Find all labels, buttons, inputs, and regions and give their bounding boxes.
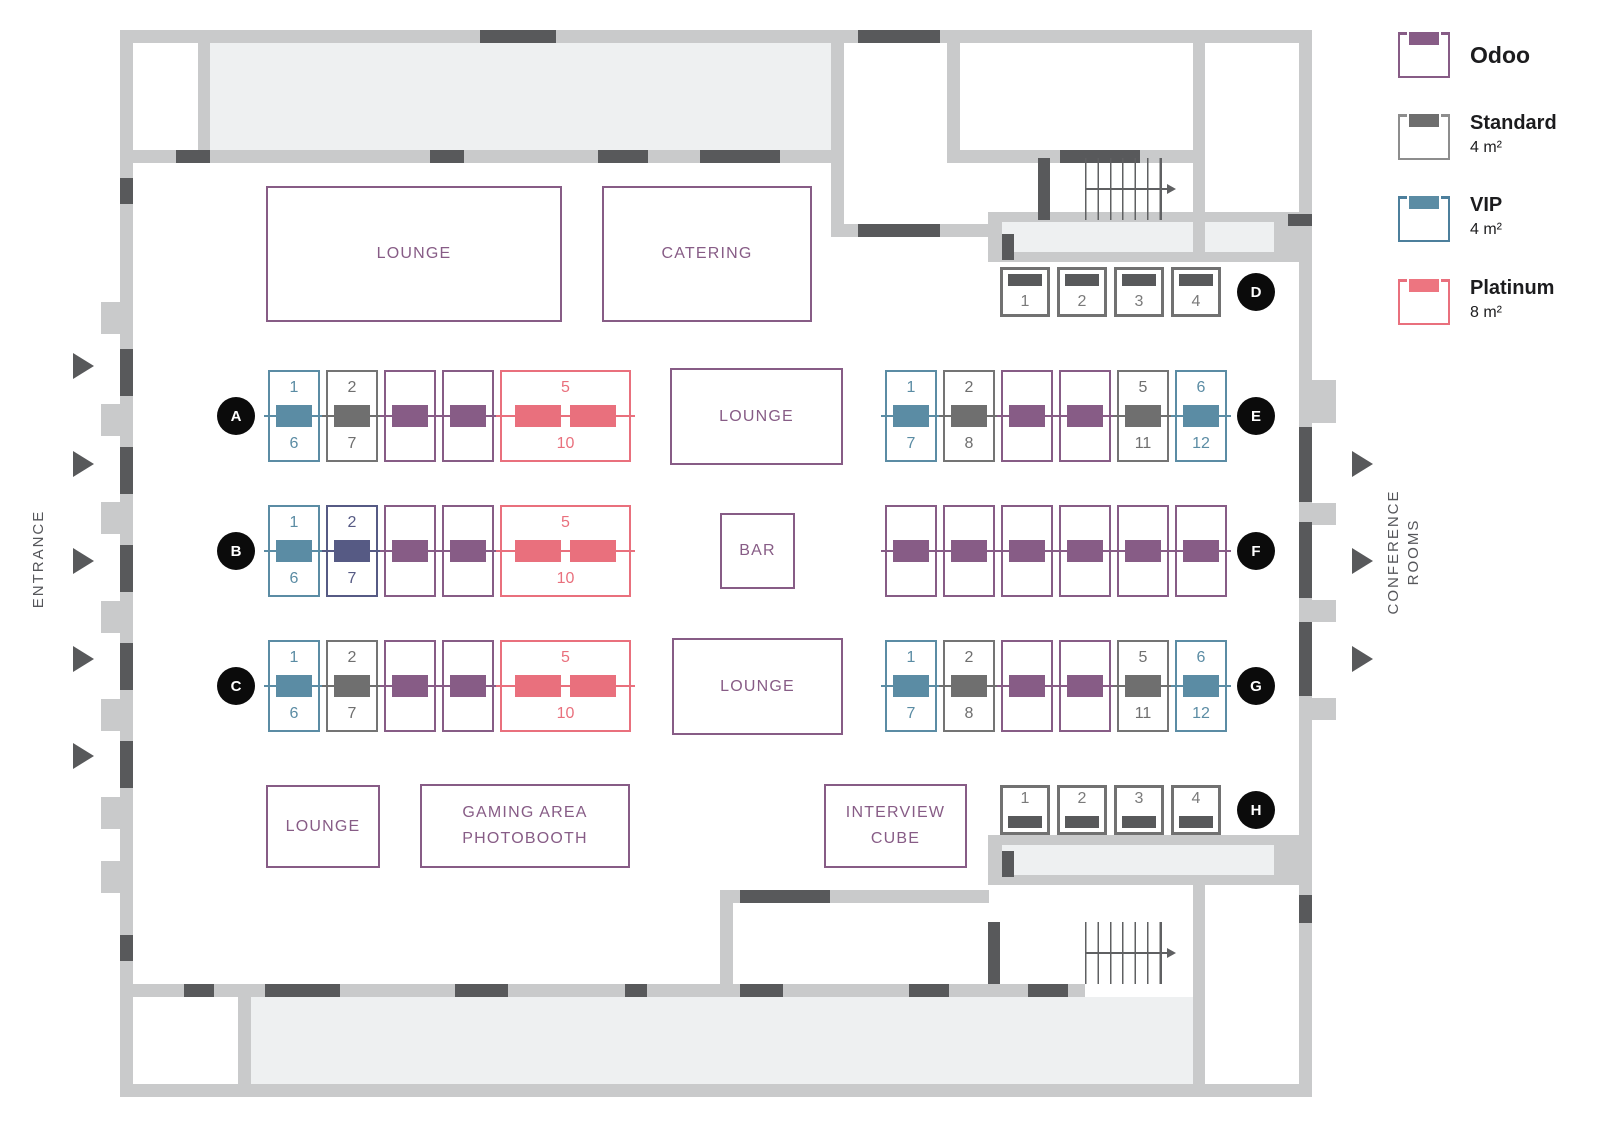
legend-vip-size: 4 m² [1470,221,1502,239]
booth-d-4[interactable]: 4 [1171,267,1221,317]
wall-bottom [120,1084,1312,1097]
legend-vip-icon [1398,196,1450,242]
booth-g-6[interactable]: 6 12 [1175,640,1227,732]
row-marker-e: E [1237,397,1275,435]
booth-c-5[interactable]: 5 10 [500,640,631,732]
row-marker-b: B [217,532,255,570]
entrance-arrow-icon [73,451,94,477]
booth-a-3[interactable] [384,370,436,462]
wall [198,43,210,163]
door-segment [120,643,133,690]
booth-h-2[interactable]: 2 [1057,785,1107,835]
conference-arrow-icon [1352,451,1373,477]
area-label: PHOTOBOOTH [462,826,588,852]
pillar [101,861,122,893]
door-segment [120,447,133,494]
door-segment [988,922,1000,984]
door-segment [455,984,508,997]
door-segment [598,150,648,163]
booth-f-4[interactable] [1059,505,1111,597]
wall [1193,43,1205,262]
legend-odoo-label: Odoo [1470,42,1530,69]
door-segment [1288,214,1312,226]
corridor-bottom [1002,845,1274,875]
door-segment [1299,895,1312,923]
legend-platinum-label: Platinum [1470,277,1554,300]
area-label: GAMING AREA [462,800,587,826]
area-bar: BAR [720,513,795,589]
conference-arrow-icon [1352,646,1373,672]
row-marker-g: G [1237,667,1275,705]
booth-g-4[interactable] [1059,640,1111,732]
row-marker-h: H [1237,791,1275,829]
storage-room-top [210,43,831,150]
wall [720,890,733,997]
area-lounge-top: LOUNGE [266,186,562,322]
stairs-direction-arrow [1085,952,1174,954]
area-interview-cube: INTERVIEW CUBE [824,784,967,868]
wall-top [120,30,1312,43]
pillar [1312,380,1336,423]
row-marker-a: A [217,397,255,435]
area-label: INTERVIEW [846,800,945,826]
booth-h-3[interactable]: 3 [1114,785,1164,835]
door-segment [740,984,783,997]
area-label: LOUNGE [286,814,361,840]
booth-e-6[interactable]: 6 12 [1175,370,1227,462]
door-segment [265,984,340,997]
booth-g-5[interactable]: 5 11 [1117,640,1169,732]
entrance-arrow-icon [73,743,94,769]
wall [238,997,251,1085]
legend-vip-label: VIP [1470,194,1502,217]
door-segment [740,890,830,903]
pillar [101,601,122,633]
booth-g-3[interactable] [1001,640,1053,732]
booth-f-5[interactable] [1117,505,1169,597]
booth-g-2[interactable]: 2 8 [943,640,995,732]
row-marker-d: D [1237,273,1275,311]
door-segment [1299,427,1312,502]
booth-h-4[interactable]: 4 [1171,785,1221,835]
pillar [101,302,122,334]
pillar [101,404,122,436]
area-gaming-photobooth: GAMING AREA PHOTOBOOTH [420,784,630,868]
area-label: CATERING [661,241,752,267]
wall [831,30,844,237]
door-segment [120,349,133,396]
pillar [101,699,122,731]
area-label: CUBE [871,826,920,852]
area-label: BAR [739,538,776,564]
booth-c-4[interactable] [442,640,494,732]
booth-e-1[interactable]: 1 7 [885,370,937,462]
area-lounge-middle-bottom: LOUNGE [672,638,843,735]
door-segment [120,741,133,788]
area-lounge-bottom: LOUNGE [266,785,380,868]
area-label: LOUNGE [720,674,795,700]
booth-e-5[interactable]: 5 11 [1117,370,1169,462]
door-segment [858,224,940,237]
booth-e-2[interactable]: 2 8 [943,370,995,462]
door-segment [120,935,133,961]
booth-d-1[interactable]: 1 [1000,267,1050,317]
pillar [1312,503,1336,525]
pillar [101,797,122,829]
booth-a-2[interactable]: 2 7 [326,370,378,462]
booth-f-6[interactable] [1175,505,1227,597]
door-segment [1002,234,1014,260]
stairs-top [1085,158,1174,220]
booth-b-2[interactable]: 2 7 [326,505,378,597]
area-label: LOUNGE [719,404,794,430]
booth-c-1[interactable]: 1 6 [268,640,320,732]
legend-platinum-icon [1398,279,1450,325]
wall [1193,885,1205,1085]
conference-label-line2: ROOMS [1404,452,1424,652]
booth-c-3[interactable] [384,640,436,732]
door-segment [120,545,133,592]
stairs-bottom [1085,922,1174,984]
row-marker-f: F [1237,532,1275,570]
door-segment [1299,622,1312,696]
booth-c-2[interactable]: 2 7 [326,640,378,732]
door-segment [700,150,780,163]
area-lounge-middle-top: LOUNGE [670,368,843,465]
entrance-label: ENTRANCE [29,479,49,639]
legend-platinum-size: 8 m² [1470,304,1502,322]
door-segment [430,150,464,163]
booth-d-3[interactable]: 3 [1114,267,1164,317]
conference-label-line1: CONFERENCE [1384,452,1404,652]
pillar [1312,600,1336,622]
door-segment [1002,851,1014,877]
legend-standard-size: 4 m² [1470,139,1502,157]
door-segment [1299,522,1312,598]
booth-h-1[interactable]: 1 [1000,785,1050,835]
row-marker-c: C [217,667,255,705]
area-label: LOUNGE [377,241,452,267]
legend-odoo-icon [1398,32,1450,78]
booth-b-1[interactable]: 1 6 [268,505,320,597]
storage-room-bottom [251,997,1193,1085]
legend-standard-icon [1398,114,1450,160]
booth-a-5[interactable]: 5 10 [500,370,631,462]
pillar [1312,698,1336,720]
stairs-direction-arrow [1085,188,1174,190]
door-segment [176,150,210,163]
door-segment [625,984,647,997]
booth-e-3[interactable] [1001,370,1053,462]
booth-d-2[interactable]: 2 [1057,267,1107,317]
conference-rooms-label: CONFERENCE ROOMS [1384,452,1424,652]
booth-b-5[interactable]: 5 10 [500,505,631,597]
area-catering: CATERING [602,186,812,322]
booth-f-3[interactable] [1001,505,1053,597]
entrance-arrow-icon [73,548,94,574]
wall [947,43,960,157]
door-segment [1038,158,1050,220]
booth-f-2[interactable] [943,505,995,597]
booth-f-1[interactable] [885,505,937,597]
door-segment [120,178,133,204]
entrance-arrow-icon [73,646,94,672]
booth-a-4[interactable] [442,370,494,462]
door-segment [909,984,949,997]
booth-b-4[interactable] [442,505,494,597]
door-segment [1028,984,1068,997]
door-segment [480,30,556,43]
booth-a-1[interactable]: 1 6 [268,370,320,462]
booth-g-1[interactable]: 1 7 [885,640,937,732]
booth-e-4[interactable] [1059,370,1111,462]
floor-plan: ENTRANCE CONFERENCE ROOMS LOUNGE CATERIN… [0,0,1600,1124]
booth-b-3[interactable] [384,505,436,597]
conference-arrow-icon [1352,548,1373,574]
door-segment [858,30,940,43]
legend-standard-label: Standard [1470,112,1557,135]
corridor-top [1002,222,1274,252]
entrance-arrow-icon [73,353,94,379]
door-segment [184,984,214,997]
pillar [101,502,122,534]
